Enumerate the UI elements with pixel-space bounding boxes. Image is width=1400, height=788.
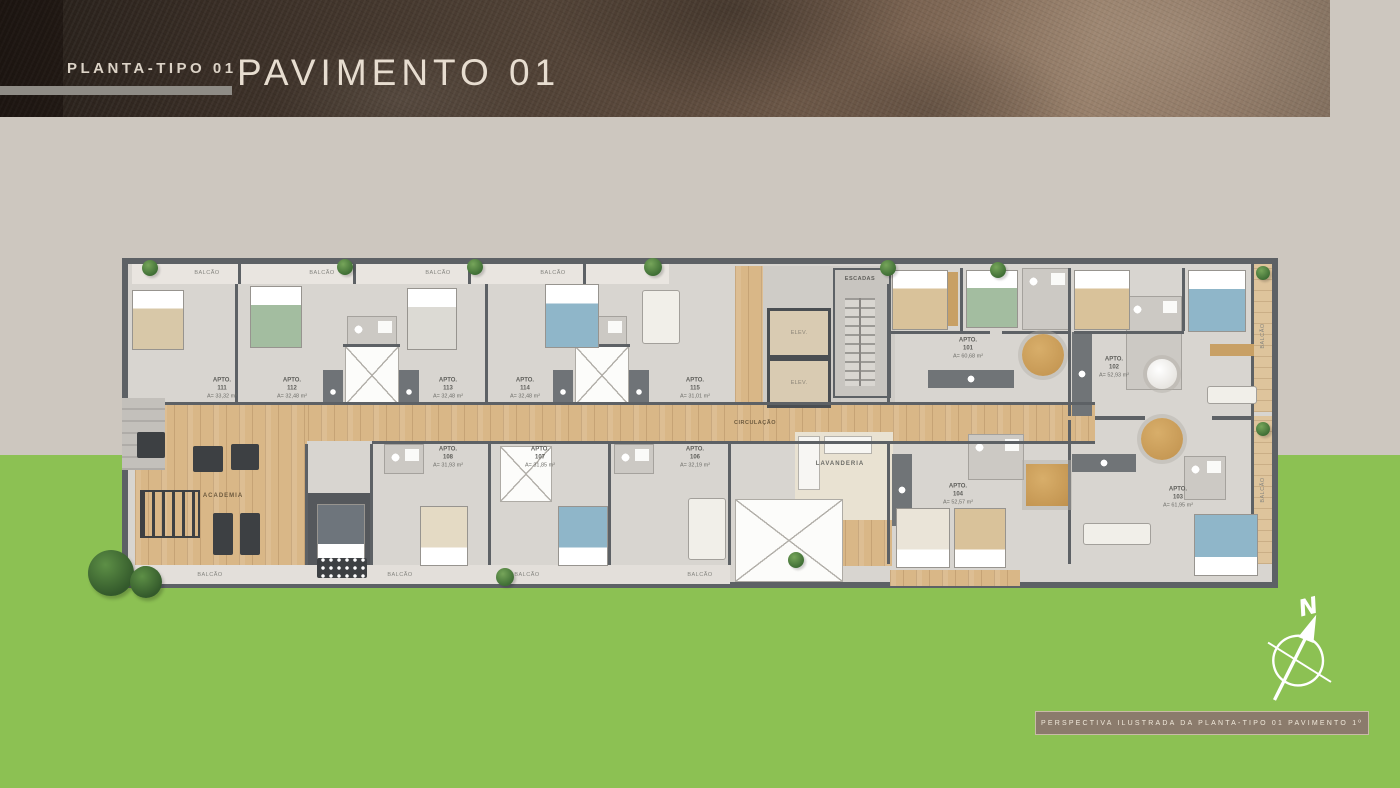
plant <box>467 259 483 275</box>
wall <box>608 444 611 565</box>
apt-area: A= 31,01 m² <box>680 393 710 400</box>
apt-area: A= 60,68 m² <box>953 353 983 360</box>
circulation-label: CIRCULAÇÃO <box>734 420 776 426</box>
sofa <box>1207 386 1257 404</box>
apt-number: 114 <box>520 385 530 393</box>
kitchen-cabinet <box>399 370 419 402</box>
apt-number: 101 <box>963 345 973 353</box>
apt-name: APTO. <box>949 484 967 492</box>
bed <box>407 288 457 350</box>
stairs-label: ESCADAS <box>845 276 875 282</box>
treadmill <box>240 513 260 555</box>
stair-rail <box>859 298 861 386</box>
apartment-label-112: APTO. 112 A= 32,48 m² <box>277 378 307 401</box>
kitchen-103 <box>1072 454 1136 472</box>
wall <box>887 444 890 564</box>
balcony-label: BALCÃO <box>687 572 712 578</box>
bed <box>420 506 468 566</box>
kitchen-cabinet <box>629 370 649 402</box>
balcony-label: BALCÃO <box>1260 323 1266 348</box>
wall <box>1095 416 1145 420</box>
wall <box>370 444 373 565</box>
treadmill <box>213 513 233 555</box>
apartment-label-111: APTO. 111 A= 33,32 m² <box>207 378 237 401</box>
bed <box>132 290 184 350</box>
bed <box>545 284 599 348</box>
apartment-label-107: APTO. 107 A= 31,85 m² <box>525 447 555 470</box>
bed <box>317 504 365 562</box>
wall <box>238 264 241 284</box>
balcony-label: BALCÃO <box>387 572 412 578</box>
compass-rose: N <box>1248 600 1358 705</box>
page: PLANTA-TIPO 01 PAVIMENTO 01 ELEV. ELEV. <box>0 0 1400 788</box>
apt-area: A= 52,93 m² <box>1099 372 1129 379</box>
apartment-label-115: APTO. 115 A= 31,01 m² <box>680 378 710 401</box>
wall <box>728 444 731 565</box>
apartment-label-102: APTO. 102 A= 52,93 m² <box>1099 357 1129 380</box>
wall <box>887 284 890 402</box>
apt-area: A= 33,32 m² <box>207 393 237 400</box>
elevator-label: ELEV. <box>791 380 808 386</box>
sideboard <box>1210 344 1254 356</box>
wall <box>890 331 990 334</box>
bathroom <box>614 444 654 474</box>
plant <box>644 258 662 276</box>
balcony-label: BALCÃO <box>514 572 539 578</box>
apt-name: APTO. <box>516 378 534 386</box>
balcony-label: BALCÃO <box>540 270 565 276</box>
laundry-label: LAVANDERIA <box>816 461 864 467</box>
caption-bar: PERSPECTIVA ILUSTRADA DA PLANTA-TIPO 01 … <box>1035 711 1369 735</box>
apartment-label-103: APTO. 103 A= 61,95 m² <box>1163 487 1193 510</box>
wall <box>488 444 491 565</box>
sofa <box>1083 523 1151 545</box>
elevator-2: ELEV. <box>767 358 831 408</box>
weight-rack <box>140 490 200 538</box>
apt-area: A= 32,19 m² <box>680 462 710 469</box>
apt-area: A= 32,48 m² <box>277 393 307 400</box>
bed <box>1188 270 1246 332</box>
light-shaft <box>575 346 629 405</box>
bathroom <box>347 316 397 346</box>
bed <box>558 506 608 566</box>
plant <box>337 259 353 275</box>
apt-number: 102 <box>1109 364 1119 372</box>
apartment-label-113: APTO. 113 A= 32,48 m² <box>433 378 463 401</box>
gym-machine <box>137 432 165 458</box>
apartment-label-104: APTO. 104 A= 52,57 m² <box>943 484 973 507</box>
wall <box>1074 331 1184 334</box>
bed <box>896 508 950 568</box>
bed <box>954 508 1006 568</box>
apt-area: A= 52,57 m² <box>943 499 973 506</box>
entrance-void <box>735 499 843 582</box>
bed <box>1074 270 1130 330</box>
plan-type-kicker: PLANTA-TIPO 01 <box>67 60 237 77</box>
plant <box>990 262 1006 278</box>
kitchen-cabinet <box>553 370 573 402</box>
kicker-underline <box>0 86 232 95</box>
sofa <box>688 498 726 560</box>
wall <box>1068 268 1071 416</box>
plant <box>788 552 804 568</box>
wall <box>1212 416 1254 420</box>
plant <box>1256 422 1270 436</box>
round-dining-table <box>1022 334 1064 376</box>
apt-name: APTO. <box>1169 487 1187 495</box>
apt-number: 115 <box>690 385 700 393</box>
apt-name: APTO. <box>1105 357 1123 365</box>
balcony-label: BALCÃO <box>309 270 334 276</box>
apartment-label-106: APTO. 106 A= 32,19 m² <box>680 447 710 470</box>
apartment-label-101: APTO. 101 A= 60,68 m² <box>953 338 983 361</box>
kitchen-101 <box>928 370 1014 388</box>
elevator-1: ELEV. <box>767 308 831 358</box>
sofa <box>642 290 680 344</box>
wall <box>485 284 488 402</box>
bathroom <box>384 444 424 474</box>
header-band: PLANTA-TIPO 01 PAVIMENTO 01 <box>0 0 1330 117</box>
wall <box>372 441 1095 444</box>
apt-number: 106 <box>690 454 700 462</box>
right-wing-balcony <box>890 570 1020 586</box>
apt-name: APTO. <box>959 338 977 346</box>
apt-number: 112 <box>287 385 297 393</box>
bed <box>1194 514 1258 576</box>
apt-area: A= 32,48 m² <box>510 393 540 400</box>
apt-name: APTO. <box>686 447 704 455</box>
wall <box>165 402 1095 405</box>
kitchen-cabinet <box>323 370 343 402</box>
balcony-label: BALCÃO <box>425 270 450 276</box>
dumbbell-rack <box>317 558 367 578</box>
gym-machine <box>231 444 259 470</box>
wall <box>1068 420 1071 564</box>
round-dining-table <box>1141 418 1183 460</box>
apt-number: 111 <box>217 385 226 393</box>
compass-icon: N <box>1237 588 1369 716</box>
wall <box>1002 331 1068 334</box>
apt-name: APTO. <box>213 378 231 386</box>
apt-number: 104 <box>953 491 963 499</box>
bed <box>966 270 1018 328</box>
square-dining-table <box>1026 464 1068 506</box>
bathroom-101 <box>1022 268 1070 330</box>
balcony-label: BALCÃO <box>194 270 219 276</box>
apt-area: A= 61,95 m² <box>1163 502 1193 509</box>
balcony-label: BALCÃO <box>1260 477 1266 502</box>
apt-area: A= 31,85 m² <box>525 462 555 469</box>
page-title: PAVIMENTO 01 <box>237 52 560 94</box>
washing-machines <box>824 436 872 454</box>
apt-number: 107 <box>535 454 545 462</box>
wall <box>960 268 963 331</box>
apt-area: A= 31,93 m² <box>433 462 463 469</box>
header-dark-block <box>0 0 63 117</box>
apt-number: 113 <box>443 385 453 393</box>
light-shaft <box>345 346 399 405</box>
elevator-label: ELEV. <box>791 330 808 336</box>
balcony-label: BALCÃO <box>197 572 222 578</box>
apt-area: A= 32,48 m² <box>433 393 463 400</box>
plant <box>1256 266 1270 280</box>
apt-name: APTO. <box>439 447 457 455</box>
bush <box>88 550 134 596</box>
gym-label: ACADEMIA <box>203 493 243 499</box>
plant <box>880 260 896 276</box>
apt-name: APTO. <box>531 447 549 455</box>
apt-number: 108 <box>443 454 453 462</box>
bed <box>250 286 302 348</box>
bottom-balcony <box>135 565 730 584</box>
plant <box>142 260 158 276</box>
apt-name: APTO. <box>283 378 301 386</box>
caption-text: PERSPECTIVA ILUSTRADA DA PLANTA-TIPO 01 … <box>1041 720 1363 727</box>
floor-plan: ELEV. ELEV. <box>122 258 1278 588</box>
apt-name: APTO. <box>686 378 704 386</box>
apartment-label-108: APTO. 108 A= 31,93 m² <box>433 447 463 470</box>
gym-machine <box>193 446 223 472</box>
bed <box>892 270 948 330</box>
wardrobe <box>948 272 958 326</box>
wall <box>353 264 356 284</box>
apt-number: 103 <box>1173 494 1183 502</box>
apartment-label-114: APTO. 114 A= 32,48 m² <box>510 378 540 401</box>
wall <box>583 264 586 284</box>
wall <box>1182 268 1185 331</box>
bush <box>130 566 162 598</box>
elevator-hall <box>735 266 765 405</box>
wall <box>343 344 400 347</box>
apt-name: APTO. <box>439 378 457 386</box>
wall <box>305 444 308 565</box>
plant <box>496 568 514 586</box>
round-table <box>1147 359 1177 389</box>
